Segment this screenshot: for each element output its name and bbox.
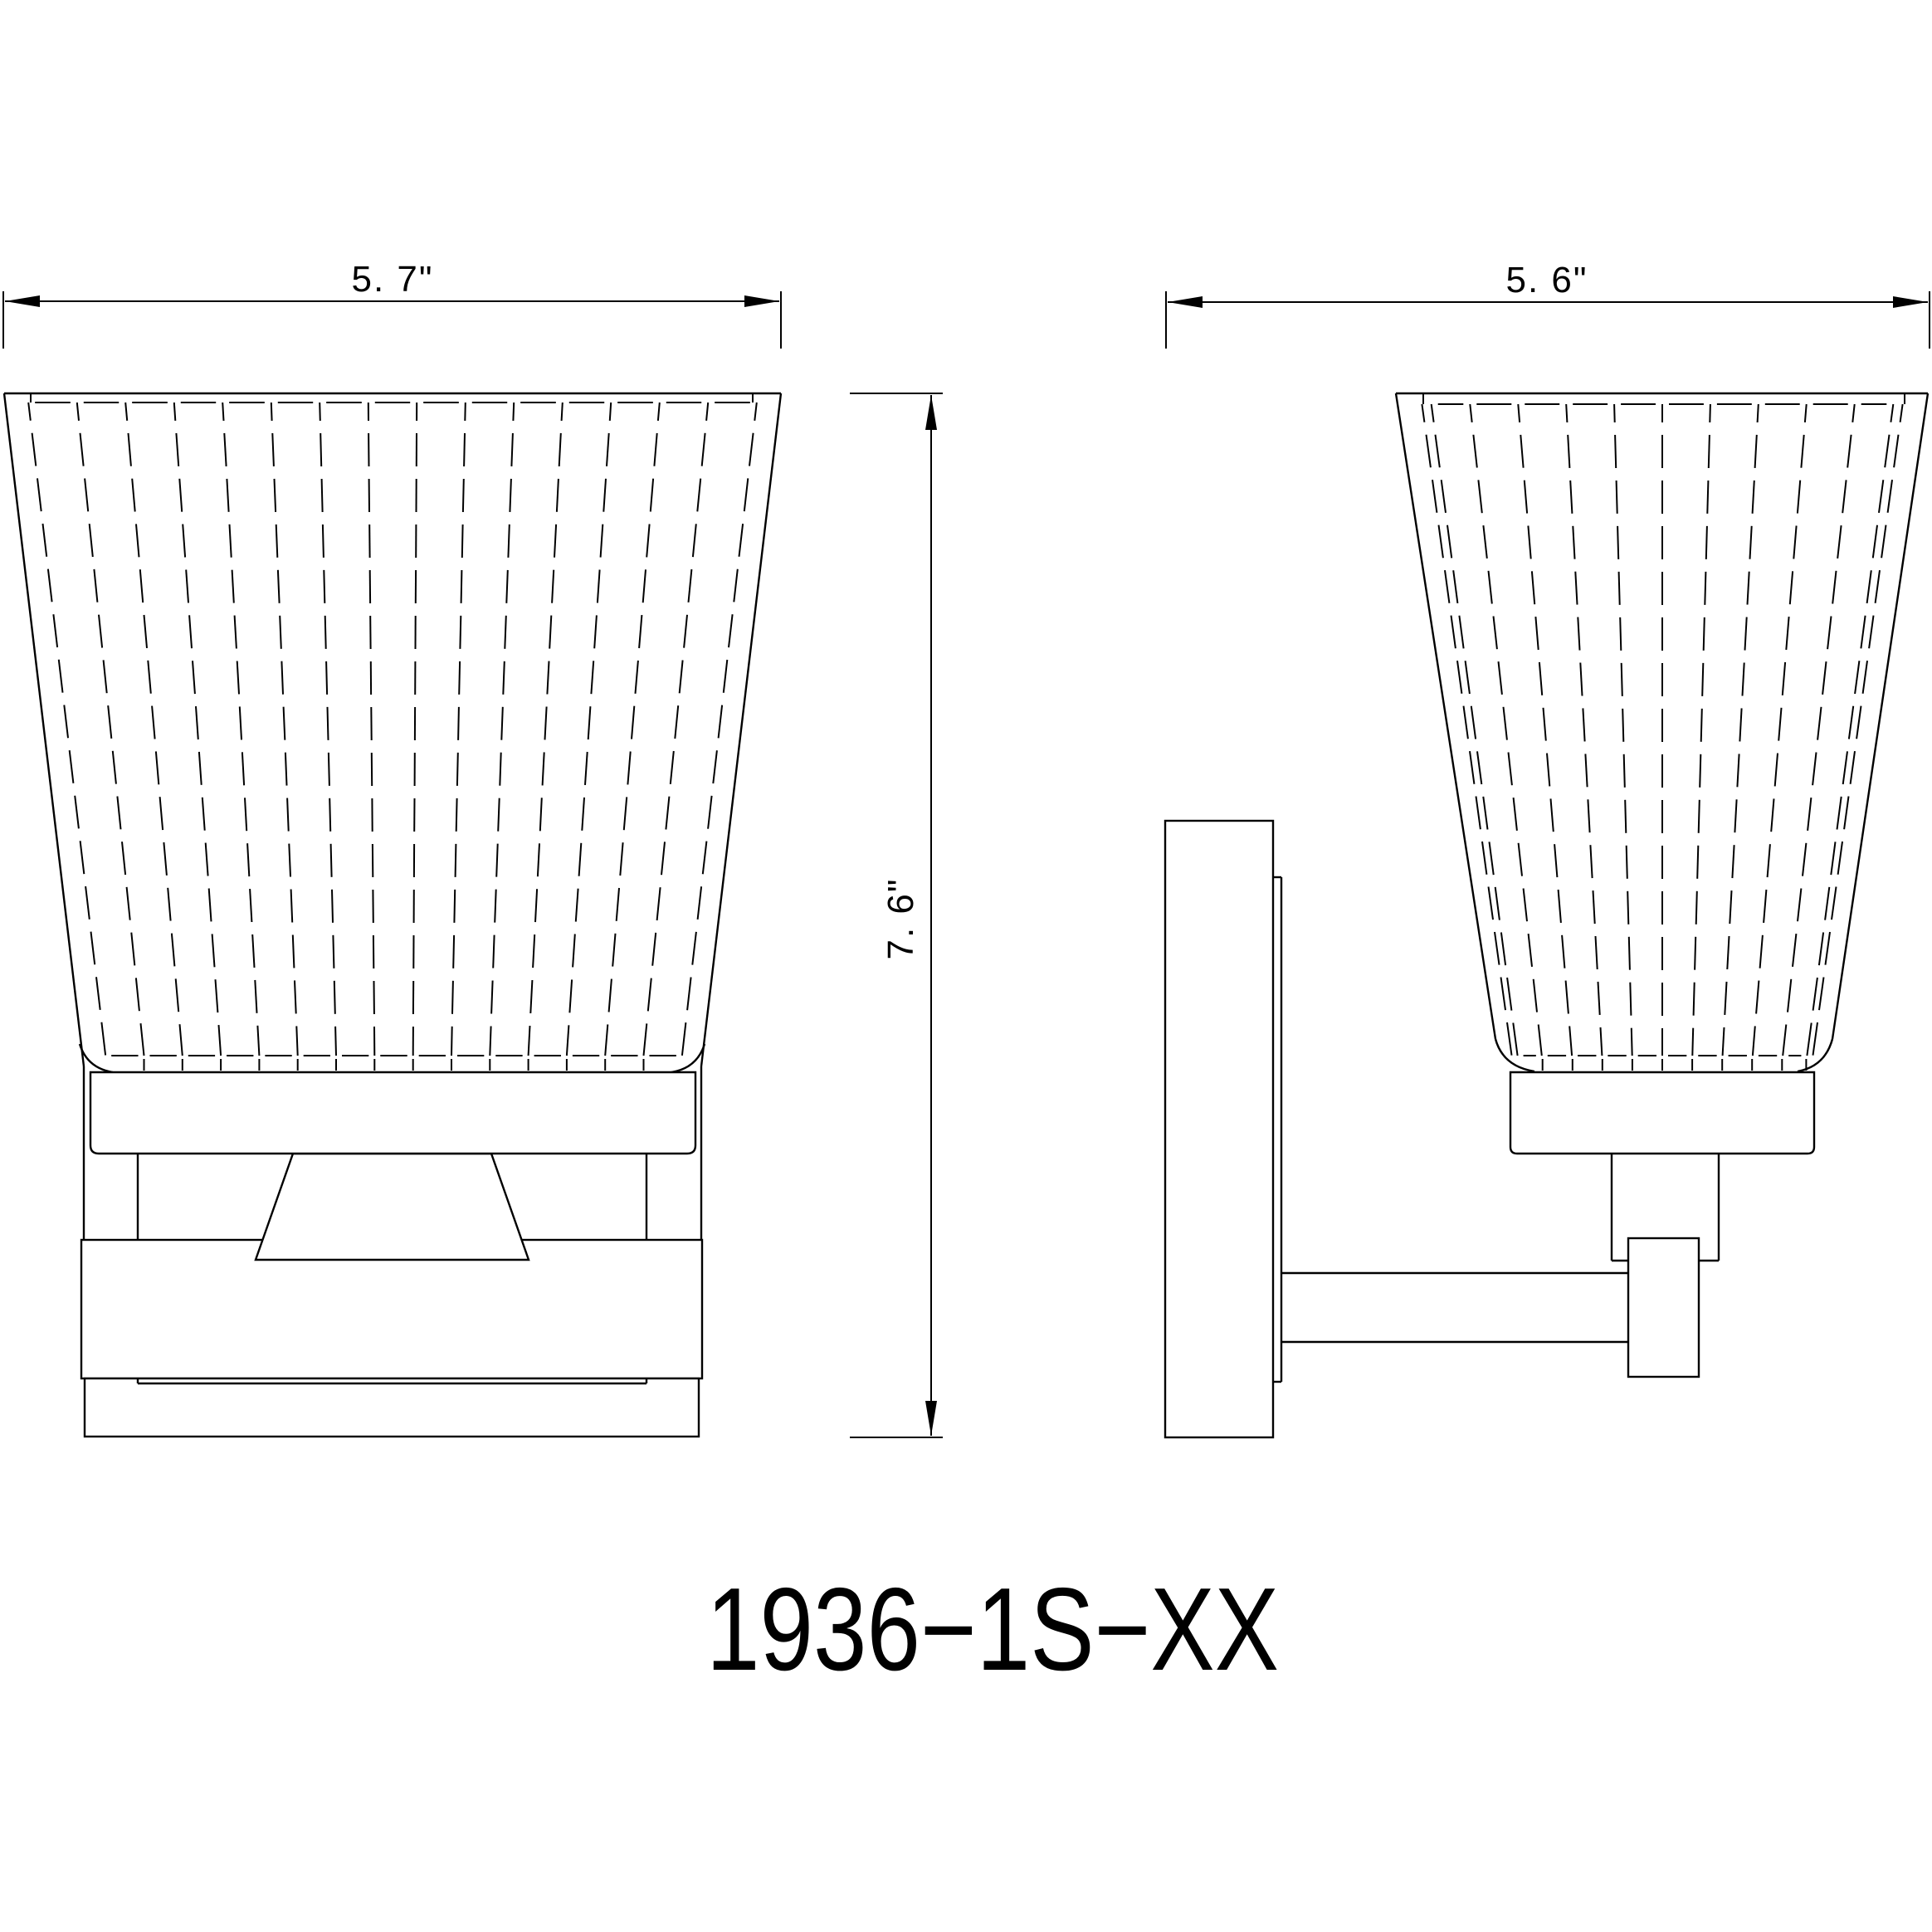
svg-text:5. 7": 5. 7" [351,259,433,300]
svg-text:5. 6": 5. 6" [1505,260,1588,300]
svg-text:7. 6": 7. 6" [881,877,921,959]
svg-text:1936−1S−XX: 1936−1S−XX [706,1564,1279,1695]
